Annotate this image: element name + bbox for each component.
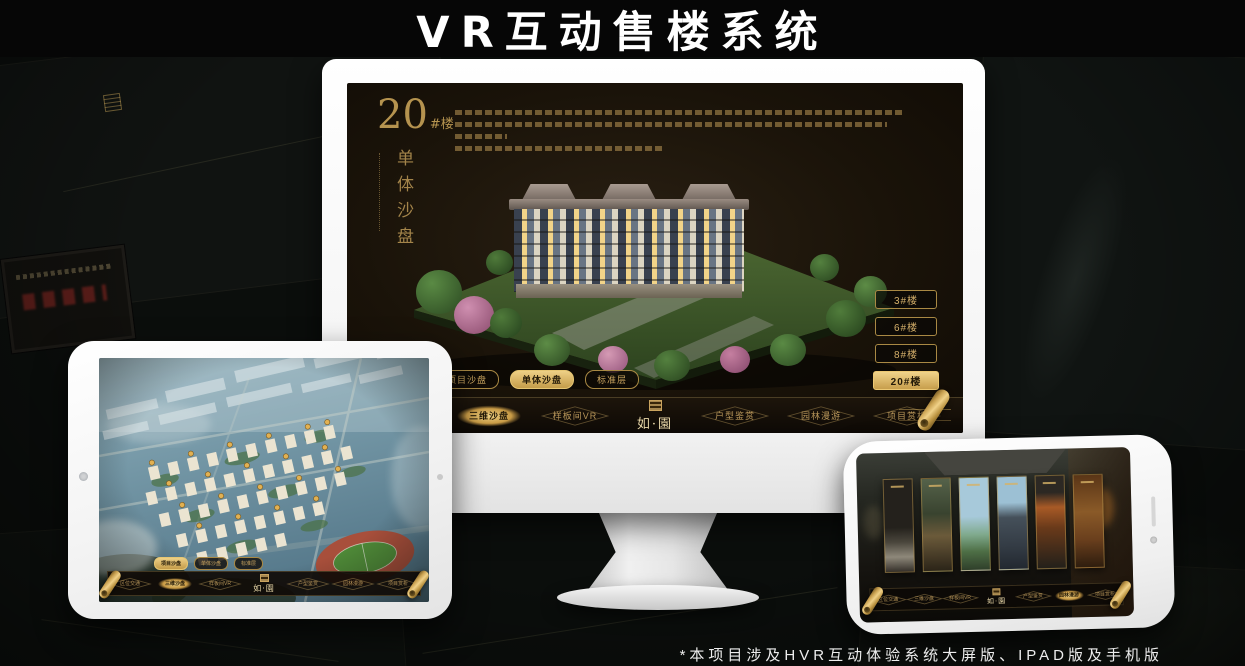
floor-button-6[interactable]: 6#楼 [875,317,937,336]
floor-selector: 3#楼 6#楼 8#楼 20#楼 [875,290,939,390]
footnote: *本项目涉及HVR互动体验系统大屏版、IPAD版及手机版 [680,644,1163,665]
tree [534,334,570,366]
seal-icon [649,400,662,411]
tree [720,346,750,373]
gallery-panel-5[interactable] [1035,475,1067,570]
nav-showroom-vr[interactable]: 样板间VR [942,590,977,606]
brand-logo: 如·園 [623,400,687,432]
nav-unit-appreciation[interactable]: 户型鉴赏 [287,576,329,592]
speaker-icon [1151,496,1156,526]
gallery-panel-6[interactable] [1073,474,1105,569]
building-model-view[interactable] [402,158,907,393]
tree [770,334,806,366]
monitor-stand-base [557,585,759,610]
description-paragraph [455,110,905,158]
view-tabs: 项目沙盘 单体沙盘 标准层 [435,370,639,389]
tree [490,308,522,338]
tree [810,254,839,281]
floor-button-3[interactable]: 3#楼 [875,290,937,309]
background-plaque [1,245,136,353]
nav-showroom-vr[interactable]: 样板间VR [199,576,241,592]
lantern-glow [863,505,884,539]
nav-garden-roam[interactable]: 园林漫游 [783,403,859,429]
tree [598,346,628,373]
nav-3d-sandtable[interactable]: 三维沙盘 [906,591,941,607]
tree [486,250,513,275]
building-number: 20 [377,92,428,138]
tab-single-sandtable[interactable]: 单体沙盘 [194,557,228,570]
phone-device: 区位交通 三维沙盘 样板间VR 如·園 户型鉴赏 园林漫游 项目赏析 [843,434,1176,635]
monitor-stand [585,511,731,590]
building-headline: 20#楼 [377,95,454,135]
tab-standard-floor[interactable]: 标准层 [234,557,263,570]
tablet-view-tabs: 项目沙盘 单体沙盘 标准层 [154,557,263,570]
nav-3d-sandtable[interactable]: 三维沙盘 [451,403,527,429]
page: VR互动售楼系统 20#楼 单体沙盘 [0,0,1245,666]
tree [454,296,494,334]
description-line [455,122,887,127]
tablet-device: 项目沙盘 单体沙盘 标准层 区位交通 三维沙盘 样板间VR 如·園 户型鉴赏 园… [68,341,452,619]
camera-icon [1150,536,1157,543]
tablet-screen[interactable]: 项目沙盘 单体沙盘 标准层 区位交通 三维沙盘 样板间VR 如·園 户型鉴赏 园… [99,358,429,602]
gallery-panel-1[interactable] [883,478,915,573]
gallery-panel-3[interactable] [959,476,991,571]
gate-canopy [924,449,1067,476]
nav-unit-appreciation[interactable]: 户型鉴赏 [697,403,773,429]
tab-standard-floor[interactable]: 标准层 [585,370,639,389]
tab-single-sandtable[interactable]: 单体沙盘 [510,370,574,389]
phone-screen[interactable]: 区位交通 三维沙盘 样板间VR 如·園 户型鉴赏 园林漫游 项目赏析 [856,447,1134,623]
seal-icon [992,588,1000,595]
home-button-icon[interactable] [437,474,443,480]
tab-project-sandtable[interactable]: 项目沙盘 [154,557,188,570]
gallery-panel-4[interactable] [997,476,1029,571]
building-model [514,184,744,306]
title-bar: VR互动售楼系统 [0,0,1245,57]
description-line [455,146,663,151]
building-number-suffix: #楼 [430,117,454,132]
seal-icon [260,574,269,582]
camera-icon [79,472,88,481]
brand-logo: 如·園 [978,587,1014,606]
nav-garden-roam[interactable]: 园林漫游 [1051,587,1086,603]
brand-logo: 如·園 [244,574,284,594]
nav-3d-sandtable[interactable]: 三维沙盘 [154,576,196,592]
nav-garden-roam[interactable]: 园林漫游 [332,576,374,592]
description-line [455,110,905,115]
floor-button-20[interactable]: 20#楼 [873,371,939,390]
nav-showroom-vr[interactable]: 样板间VR [537,403,613,429]
floor-button-8[interactable]: 8#楼 [875,344,937,363]
aerial-masterplan-view [99,358,429,602]
nav-unit-appreciation[interactable]: 户型鉴赏 [1015,588,1050,604]
tree [654,350,690,381]
tablet-navbar: 区位交通 三维沙盘 样板间VR 如·園 户型鉴赏 园林漫游 项目赏析 [107,571,421,596]
building-facade [514,209,744,292]
headline-english-caption [379,153,381,231]
page-title: VR互动售楼系统 [416,0,828,60]
tree [826,300,866,337]
description-line [455,134,507,139]
background-gold-emblem [103,93,122,112]
gallery-panel-2[interactable] [921,477,953,572]
